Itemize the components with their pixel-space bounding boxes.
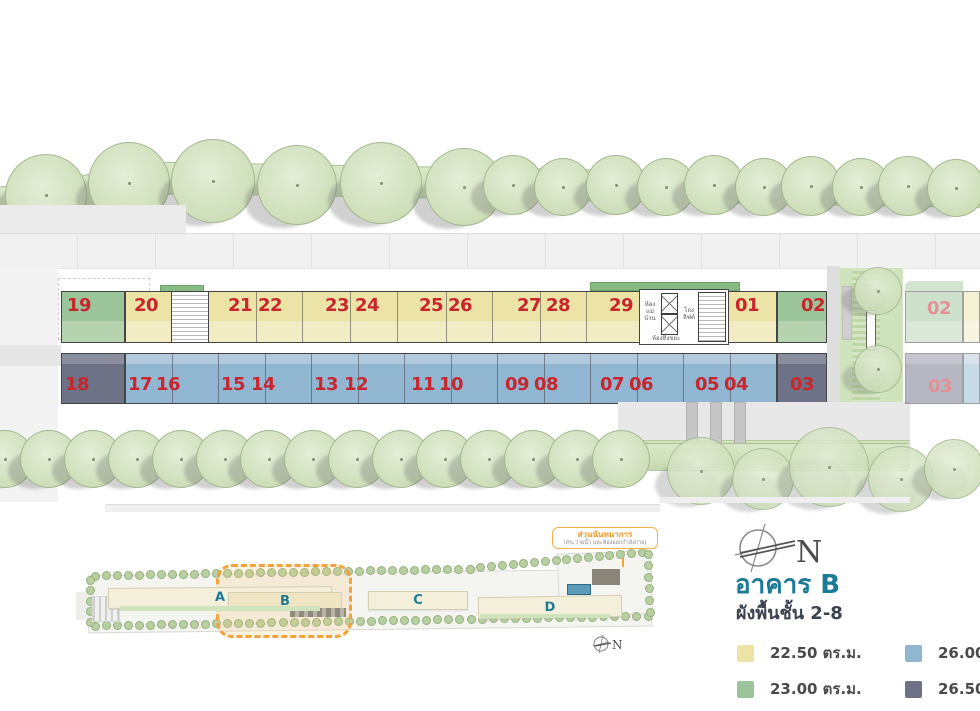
road-block-left [0,205,186,233]
site-border-tree-icon [541,557,550,566]
site-border-tree-icon [113,621,122,630]
site-border-tree-icon [168,620,177,629]
site-border-tree-icon [530,558,539,567]
tree-center-dot [763,186,766,189]
tree-center-dot [828,466,831,469]
wall-divider [497,353,498,404]
site-border-tree-icon [411,616,420,625]
legend-swatch-slate [905,681,922,698]
adjacent-unit-number-02: 02 [927,300,951,318]
site-border-tree-icon [190,570,199,579]
elevator-shaft [661,314,678,335]
tree-center-dot [488,458,491,461]
floorplan-canvas: ห้องแม่บ้าน โถงลิฟต์ ห้องทิ้งขยะ 1920212… [0,0,980,711]
wall-divider [350,291,351,343]
unit-number-13: 13 [314,376,338,394]
site-border-tree-icon [422,616,431,625]
site-border-tree-icon [355,567,364,576]
tree-center-dot [463,186,466,189]
unit-number-19: 19 [67,297,91,315]
wall-divider [683,353,684,404]
site-border-tree-icon [410,566,419,575]
wall-divider [492,291,493,343]
site-border-tree-icon [157,570,166,579]
site-border-tree-icon [201,620,210,629]
unit-number-11: 11 [411,376,435,394]
unit-number-18: 18 [65,376,89,394]
wall-divider [586,291,587,343]
unit-number-24: 24 [355,297,379,315]
legend-swatch-yellow [737,645,754,662]
tree-center-dot [665,186,668,189]
tree-center-dot [532,458,535,461]
unit-number-04: 04 [724,376,748,394]
legend-item-yellow: 22.50 ตร.ม. [737,641,905,665]
wall-divider [404,353,405,404]
tree-icon [924,439,980,499]
legend-label-yellow: 22.50 ตร.ม. [770,641,862,665]
tree-center-dot [860,186,863,189]
tree-center-dot [136,458,139,461]
tree-center-dot [762,478,765,481]
site-border-tree-icon [552,556,561,565]
unit-number-20: 20 [134,297,158,315]
elevator-shaft [661,293,678,314]
site-border-tree-icon [644,550,653,559]
tree-center-dot [512,184,515,187]
site-border-tree-icon [86,576,95,585]
unit-number-12: 12 [344,376,368,394]
site-border-tree-icon [113,571,122,580]
unit-number-23: 23 [325,297,349,315]
site-border-tree-icon [509,560,518,569]
bottom-road-line-right [660,497,910,503]
garden-paving [618,402,910,442]
page-title: อาคาร B [735,571,840,600]
tree-center-dot [48,458,51,461]
maid-room-label: ห้องแม่บ้าน [641,302,659,323]
site-border-tree-icon [595,552,604,561]
site-building-c-label: C [413,594,423,607]
unit-number-09: 09 [505,376,529,394]
site-building-a-label: A [215,591,225,604]
site-pool [567,584,591,595]
site-building-c: C [368,591,468,610]
tree-center-dot [953,468,956,471]
wall-divider [397,291,398,343]
site-border-tree-icon [498,561,507,570]
tree-center-dot [615,184,618,187]
tree-icon [854,345,902,393]
compass-icon: N [731,521,821,575]
wall-divider [311,353,312,404]
page-subtitle: ผังพื้นชั้น 2-8 [736,604,843,624]
unit-number-05: 05 [695,376,719,394]
unit-number-15: 15 [221,376,245,394]
kiosk [866,310,876,350]
unit-number-03: 03 [790,376,814,394]
annotation-leader [622,558,624,567]
top-road [0,233,980,269]
wall-divider [302,291,303,343]
mini-site-plan: A B C D ส่วนนันทนาการ (สระว่ายน้ำ และห้อ… [60,518,660,668]
site-border-tree-icon [190,620,199,629]
tree-center-dot [380,182,383,185]
site-border-tree-icon [168,570,177,579]
tree-center-dot [877,368,880,371]
tree-center-dot [700,470,703,473]
site-border-tree-icon [519,559,528,568]
tree-center-dot [312,458,315,461]
site-border-tree-icon [356,617,365,626]
unit-number-16: 16 [156,376,180,394]
tree-center-dot [212,180,215,183]
tree-center-dot [877,290,880,293]
svg-text:N: N [796,535,821,570]
site-border-tree-icon [573,554,582,563]
tree-center-dot [955,187,958,190]
unit-number-17: 17 [128,376,152,394]
site-border-tree-icon [367,617,376,626]
tree-center-dot [296,184,299,187]
tree-center-dot [45,194,48,197]
tree-center-dot [576,458,579,461]
tree-center-dot [810,185,813,188]
corridor-entry-road [0,345,61,366]
stairwell-west [171,291,209,343]
site-lawn-strip [120,606,320,611]
tree-icon [257,145,337,225]
unit-number-28: 28 [546,297,570,315]
site-border-tree-icon [400,616,409,625]
unit-number-01: 01 [735,297,759,315]
tree-icon [592,430,650,488]
unit-number-08: 08 [534,376,558,394]
site-border-tree-icon [135,571,144,580]
unit-number-29: 29 [609,297,633,315]
recreation-annotation-subtitle: (สระว่ายน้ำ และห้องออกกำลังกาย) [556,540,654,547]
unit-number-21: 21 [228,297,252,315]
tree-center-dot [180,458,183,461]
site-clubhouse [592,569,620,585]
legend: 22.50 ตร.ม.26.00 ตร.ม.23.00 ตร.ม.26.50 ต… [737,641,980,701]
recreation-annotation: ส่วนนันทนาการ (สระว่ายน้ำ และห้องออกกำลั… [552,527,658,549]
site-border-tree-icon [466,565,475,574]
site-border-tree-icon [179,570,188,579]
legend-label-slate: 26.50 ตร.ม. [938,677,980,701]
wall-divider [218,353,219,404]
mini-compass-icon: N [592,634,626,654]
service-core: ห้องแม่บ้าน โถงลิฟต์ ห้องทิ้งขยะ [639,289,729,345]
tree-center-dot [713,184,716,187]
site-border-tree-icon [399,566,408,575]
unit-number-02: 02 [801,297,825,315]
site-border-tree-icon [86,586,95,595]
adjacent-unit [963,353,980,404]
tree-icon [340,142,422,224]
tree-center-dot [620,458,623,461]
legend-item-green: 23.00 ตร.ม. [737,677,905,701]
adjacent-building-preview: 0203 [905,280,980,410]
site-border-tree-icon [102,571,111,580]
site-border-tree-icon [627,549,636,558]
unit-number-22: 22 [258,297,282,315]
wall-divider [590,353,591,404]
tree-center-dot [4,458,7,461]
wall-divider [256,291,257,343]
unit-number-14: 14 [251,376,275,394]
tree-center-dot [400,458,403,461]
lift-lobby-label: โถงลิฟต์ [679,308,699,322]
site-border-tree-icon [644,561,653,570]
stairwell-core [698,292,726,342]
legend-label-blue: 26.00 ตร.ม. [938,641,980,665]
site-border-tree-icon [124,571,133,580]
site-border-tree-icon [179,620,188,629]
legend-swatch-blue [905,645,922,662]
tree-center-dot [92,458,95,461]
legend-item-blue: 26.00 ตร.ม. [905,641,980,665]
legend-swatch-green [737,681,754,698]
tree-center-dot [224,458,227,461]
site-border-tree-icon [645,584,654,593]
adjacent-unit [963,291,980,343]
unit-number-25: 25 [419,297,443,315]
site-border-tree-icon [584,553,593,562]
site-border-tree-icon [124,621,133,630]
unit-number-07: 07 [600,376,624,394]
tree-icon [927,159,980,217]
tree-center-dot [907,185,910,188]
site-building-d-label: D [544,600,555,613]
site-border-tree-icon [135,621,144,630]
unit-number-26: 26 [448,297,472,315]
site-border-tree-icon [102,621,111,630]
unit-number-10: 10 [439,376,463,394]
wall-divider [446,291,447,343]
tree-center-dot [562,186,565,189]
bottom-road-line [105,504,660,512]
site-border-tree-icon [605,551,614,560]
tree-center-dot [356,458,359,461]
unit-number-06: 06 [629,376,653,394]
unit-number-27: 27 [517,297,541,315]
tree-center-dot [444,458,447,461]
adjacent-unit-number-03: 03 [928,378,952,396]
site-border-tree-icon [645,596,654,605]
tree-center-dot [128,182,131,185]
svg-text:N: N [612,638,623,652]
legend-label-green: 23.00 ตร.ม. [770,677,862,701]
site-lawn-strip [480,614,610,618]
recreation-annotation-title: ส่วนนันทนาการ [556,530,654,540]
legend-item-slate: 26.50 ตร.ม. [905,677,980,701]
tree-center-dot [268,458,271,461]
site-border-tree-icon [646,608,655,617]
site-border-tree-icon [146,621,155,630]
site-border-tree-icon [644,573,653,582]
site-border-tree-icon [467,615,476,624]
tree-icon [854,267,902,315]
garbage-room-label: ห้องทิ้งขยะ [652,336,680,343]
tree-center-dot [900,478,903,481]
